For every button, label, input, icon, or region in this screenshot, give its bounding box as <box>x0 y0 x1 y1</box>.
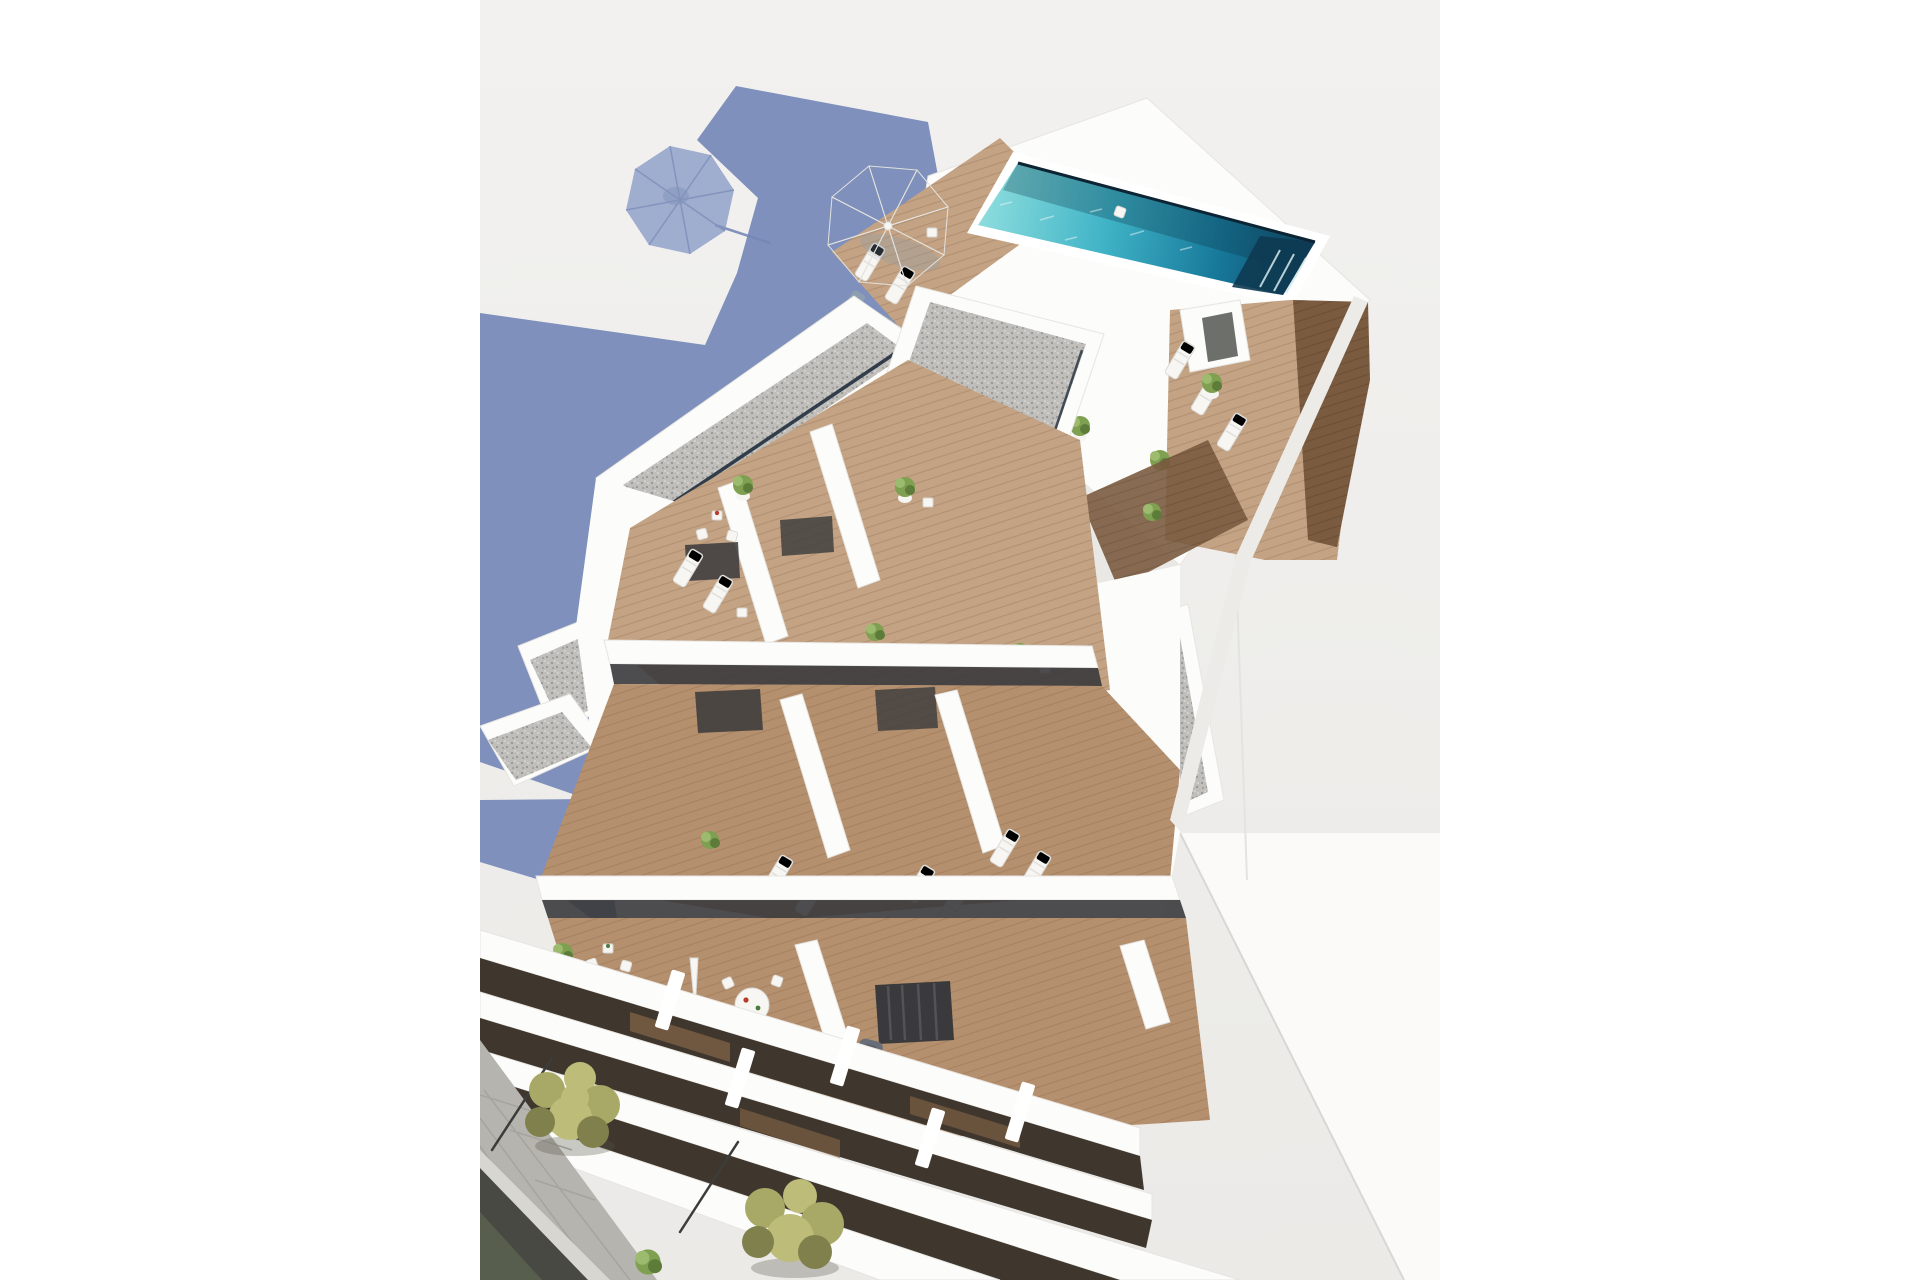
bulkhead-door <box>1202 312 1238 362</box>
parasol-finial <box>884 222 892 230</box>
bistro-chair <box>620 960 632 972</box>
glass-door <box>695 689 763 733</box>
table-decor <box>606 944 610 948</box>
side-table <box>737 608 747 617</box>
glass-door <box>875 687 938 731</box>
render-canvas <box>480 0 1440 1280</box>
glass-door-band <box>542 900 1186 918</box>
table-decor <box>756 1006 761 1011</box>
property-render-image <box>480 0 1440 1280</box>
side-table <box>923 498 933 507</box>
screenshot <box>0 0 1920 1280</box>
glass-door <box>780 516 834 556</box>
curtained-window <box>875 981 954 1044</box>
table-decor <box>715 511 719 515</box>
side-table <box>927 228 937 237</box>
table-decor <box>743 997 748 1002</box>
slab-edge <box>536 876 1180 900</box>
bistro-chair <box>726 530 738 542</box>
parasol-shadow-hub <box>663 187 689 205</box>
middle-terraces <box>536 664 1180 926</box>
bistro-chair <box>696 528 708 540</box>
